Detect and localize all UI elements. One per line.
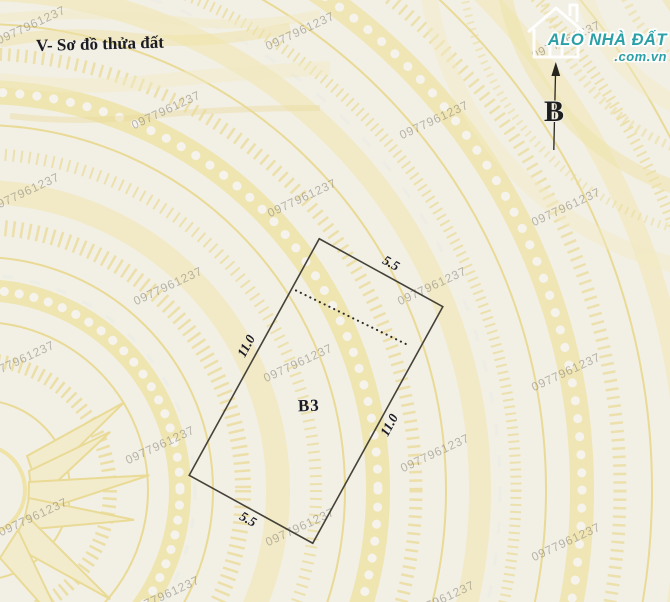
brand-domain: .com.vn xyxy=(548,50,667,64)
plot-label: B3 xyxy=(298,396,320,416)
page-title: V- Sơ đồ thửa đất xyxy=(36,33,164,56)
plot-dim-right: 11.0 xyxy=(377,411,401,438)
brand-name: ALO NHÀ ĐẤT xyxy=(548,32,667,49)
plot-dim-top: 5.5 xyxy=(380,252,402,273)
plot-diagram: 5.5 11.0 11.0 5.5 B3 B xyxy=(0,0,670,602)
north-label: B xyxy=(544,95,564,128)
brand-logo: ALO NHÀ ĐẤT .com.vn xyxy=(548,32,667,64)
north-arrow: B xyxy=(544,62,564,150)
plot-dotted-line xyxy=(296,291,410,347)
plot-rectangle xyxy=(189,239,443,544)
north-arrow-icon xyxy=(551,62,560,76)
page-background: 0977961237097796123709779612370977961237… xyxy=(0,0,670,602)
